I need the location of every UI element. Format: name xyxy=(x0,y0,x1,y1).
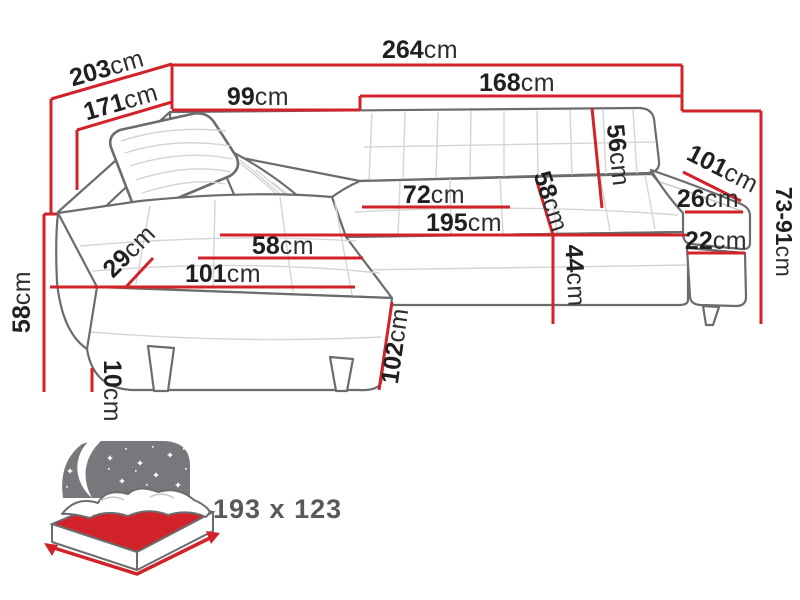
right-leg xyxy=(703,306,719,325)
right-front-face xyxy=(346,232,688,305)
dimension-label: 73-91cm xyxy=(771,187,797,278)
dimension-label: 72cm xyxy=(403,181,465,209)
dimension-label: 99cm xyxy=(227,83,289,111)
sleeping-area-label: 193 x 123 xyxy=(213,494,342,524)
sofa-dimension-diagram: 264cm 203cm 171cm 99cm 168cm 56cm 101cm … xyxy=(0,0,800,600)
dimension-label: 10cm xyxy=(98,360,126,422)
dimension-label: 44cm xyxy=(559,244,590,308)
dimension-label: 264cm xyxy=(382,36,458,64)
dimension-line xyxy=(44,214,57,392)
dimension-label: 58cm xyxy=(252,232,314,260)
dimension-label: 22cm xyxy=(685,227,747,255)
dimension-label: 101cm xyxy=(185,260,261,288)
armrest-base xyxy=(687,248,746,306)
dimension-label: 26cm xyxy=(677,185,739,213)
dimension-label: 58cm xyxy=(8,271,36,333)
dimension-label: 168cm xyxy=(479,69,555,97)
diagram-svg: 264cm 203cm 171cm 99cm 168cm 56cm 101cm … xyxy=(0,0,800,600)
dimension-right-back-width: 168cm xyxy=(360,69,682,97)
dimension-side-height: 58cm xyxy=(8,214,57,392)
dimension-armrest-width: 26cm xyxy=(677,185,743,213)
sleeping-area-icon: 193 x 123 xyxy=(44,441,342,574)
dimension-corner-back-width: 99cm xyxy=(172,83,360,111)
dimension-armrest-ledge-height: 22cm xyxy=(685,227,747,255)
dimension-label: 195cm xyxy=(426,209,502,237)
